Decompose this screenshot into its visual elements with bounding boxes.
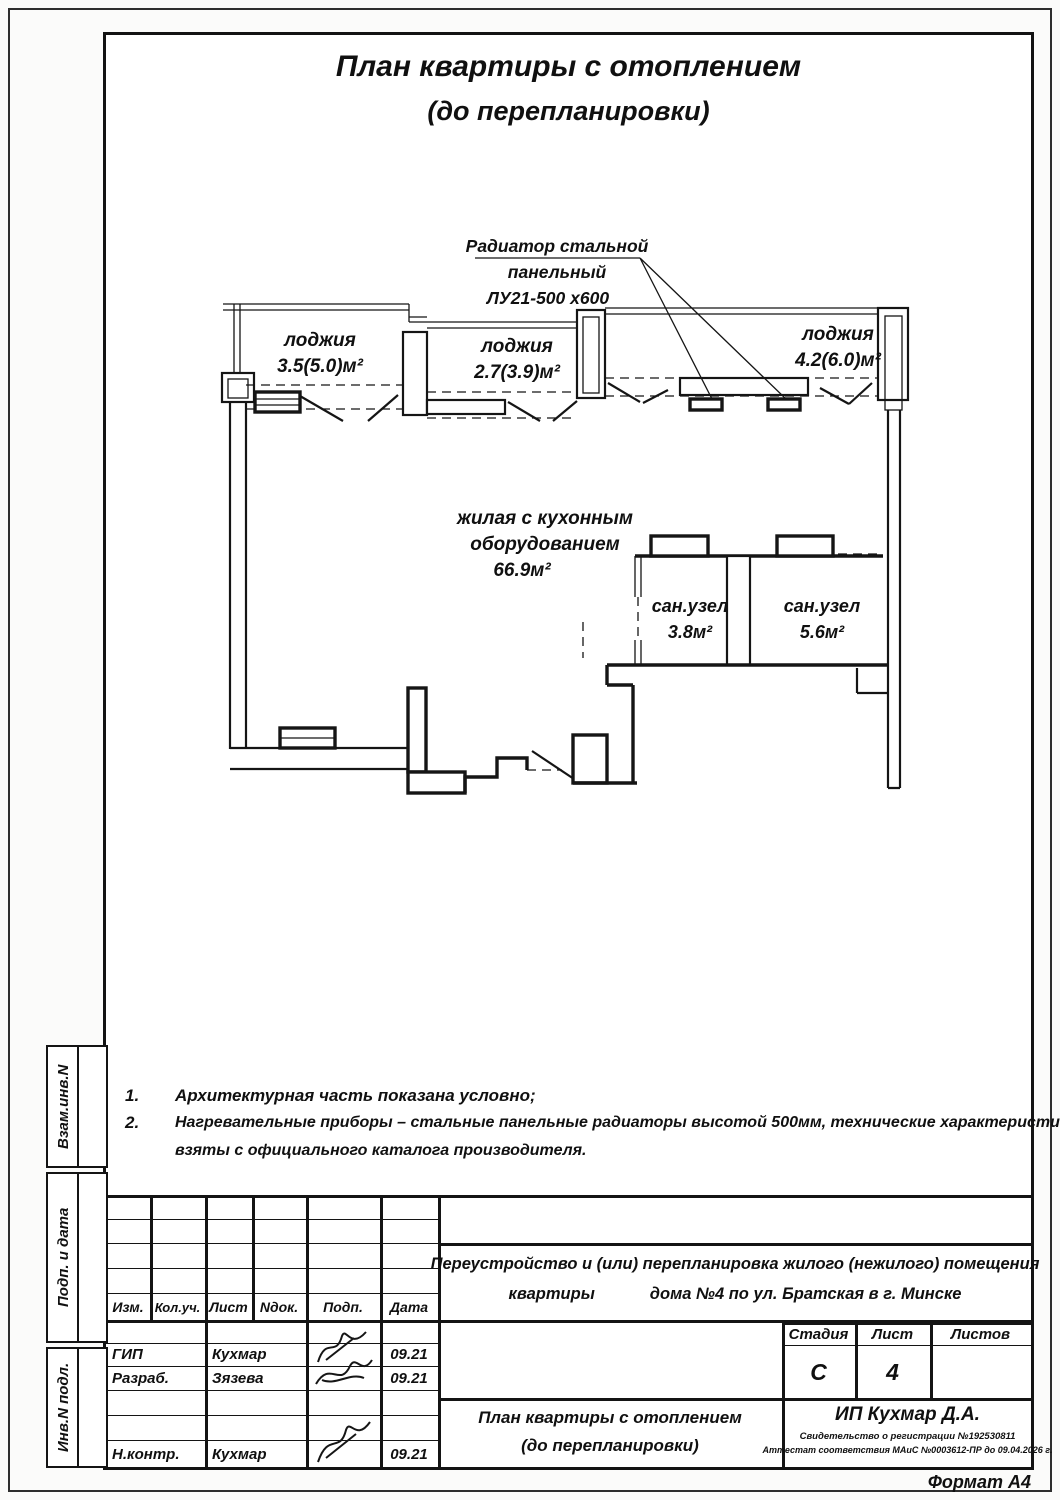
sidebar-group-podp: Подп. и дата [46, 1172, 108, 1343]
sheet-title-line1: План квартиры с отоплением [103, 48, 1034, 86]
signature-gip [318, 1332, 366, 1362]
living-room-area: 66.9м² [493, 560, 551, 581]
sheets-value [930, 1350, 1031, 1394]
format-label: Формат А4 [850, 1471, 1031, 1493]
san2-name: сан.узел [784, 596, 861, 616]
titleblock-line [438, 1398, 1031, 1401]
titleblock-line [106, 1243, 438, 1244]
note-1-number: 1. [125, 1086, 165, 1106]
sidebar-label-vzam: Взам.инв.N [48, 1047, 79, 1166]
note-2-text-cont: взяты с официального каталога производит… [175, 1141, 995, 1161]
stage-header: Стадия [782, 1324, 855, 1345]
san1-name: сан.узел [652, 596, 729, 616]
row-nkontr-date: 09.21 [380, 1440, 438, 1468]
titleblock-line [438, 1243, 1031, 1246]
sidebar-label-podp: Подп. и дата [48, 1174, 79, 1341]
titleblock-line [106, 1415, 438, 1416]
row-razrab-date: 09.21 [380, 1366, 438, 1390]
firm-cert1: Свидетельство о регистрации №192530811 [784, 1430, 1031, 1442]
radiator-label-line2: панельный [508, 262, 607, 282]
sidebar-group-inv: Инв.N подл. [46, 1347, 108, 1468]
titleblock-line [106, 1219, 438, 1220]
signature-nkontr [318, 1422, 370, 1462]
loggia2-area: 2.7(3.9)м² [473, 362, 561, 383]
row-nkontr-name: Кухмар [212, 1440, 304, 1468]
column-header-kol: Кол.уч. [150, 1294, 205, 1320]
bottom-walls [408, 622, 637, 793]
doc-title-line1: План квартиры с отоплением [440, 1406, 780, 1430]
titleblock-line [205, 1195, 208, 1468]
drawing-sheet: { "title": { "line1": "План квартиры с о… [0, 0, 1060, 1500]
radiator-label-line1: Радиатор стальной [466, 236, 649, 256]
loggia3-name: лоджия [801, 324, 874, 345]
sheet-value: 4 [855, 1350, 930, 1394]
row-gip-role: ГИП [112, 1343, 202, 1366]
note-2-text: Нагревательные приборы – стальные панель… [175, 1113, 995, 1133]
loggia1-name: лоджия [283, 330, 356, 351]
floor-plan: Радиатор стальной панельный ЛУ21-500 х60… [103, 140, 1034, 840]
project-description-line2: квартиры дома №4 по ул. Братская в г. Ми… [440, 1282, 1030, 1306]
column-header-data: Дата [380, 1294, 438, 1320]
loggia1-area: 3.5(5.0)м² [277, 356, 364, 377]
signatures [306, 1322, 380, 1468]
column-header-podp: Подп. [306, 1294, 380, 1320]
project-description-line1: Переустройство и (или) перепланировка жи… [440, 1252, 1030, 1276]
living-room-label-line2: оборудованием [470, 534, 620, 555]
stage-value: С [782, 1350, 855, 1394]
sidebar-group-vzam: Взам.инв.N [46, 1045, 108, 1168]
firm-name: ИП Кухмар Д.А. [784, 1402, 1031, 1428]
titleblock-line [106, 1195, 1031, 1198]
row-razrab-role: Разраб. [112, 1366, 202, 1390]
column-header-ndok: Nдок. [252, 1294, 306, 1320]
san1-area: 3.8м² [668, 622, 713, 642]
living-room-label-line1: жилая с кухонным [456, 508, 633, 529]
doc-title-line2: (до перепланировки) [440, 1434, 780, 1458]
note-1-text: Архитектурная часть показана условно; [175, 1086, 995, 1106]
note-2-number: 2. [125, 1113, 165, 1133]
sheet-title-line2: (до перепланировки) [103, 94, 1034, 128]
titleblock-line [106, 1390, 438, 1391]
loggia3-area: 4.2(6.0)м² [794, 350, 882, 371]
column-header-izm: Изм. [106, 1294, 150, 1320]
row-razrab-name: Зязева [212, 1366, 304, 1390]
row-nkontr-role: Н.контр. [112, 1440, 202, 1468]
row-gip-date: 09.21 [380, 1343, 438, 1366]
sheet-header: Лист [855, 1324, 930, 1345]
titleblock-line [782, 1345, 1031, 1346]
row-gip-name: Кухмар [212, 1343, 304, 1366]
signature-razrab [316, 1360, 372, 1384]
column-header-list: Лист [205, 1294, 252, 1320]
san2-area: 5.6м² [800, 622, 845, 642]
sheets-header: Листов [930, 1324, 1031, 1345]
firm-cert2: Аттестат соответствия МАиС №0003612-ПР д… [784, 1444, 1031, 1456]
titleblock-line [106, 1268, 438, 1269]
loggia2-name: лоджия [480, 336, 553, 357]
titleblock-line [380, 1195, 383, 1468]
radiator-label-line3: ЛУ21-500 х600 [485, 288, 609, 308]
sidebar-label-inv: Инв.N подл. [48, 1349, 79, 1466]
